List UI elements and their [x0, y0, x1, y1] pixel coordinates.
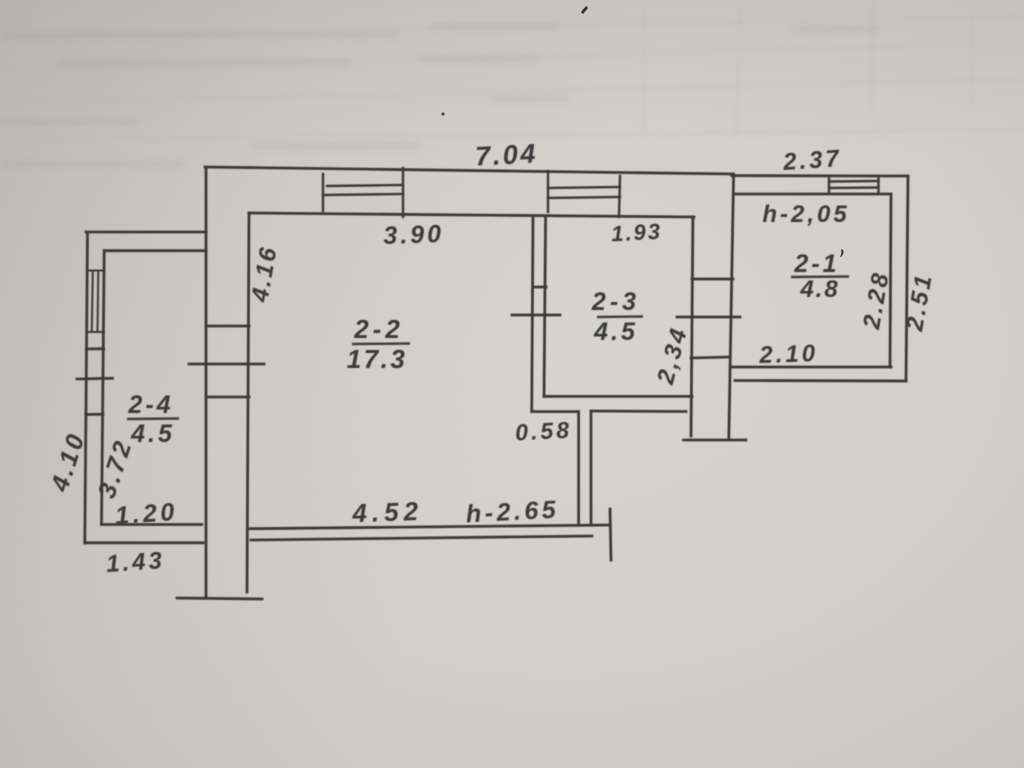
- svg-text:h-2.65: h-2.65: [465, 496, 560, 529]
- svg-text:1.93: 1.93: [611, 219, 663, 247]
- svg-text:2.10: 2.10: [758, 340, 819, 369]
- svg-text:h-2,05: h-2,05: [762, 201, 849, 228]
- svg-text:4.5: 4.5: [593, 318, 638, 346]
- svg-text:17.3: 17.3: [347, 344, 408, 374]
- svg-text:2-3: 2-3: [591, 288, 640, 316]
- svg-text:2-4: 2-4: [127, 391, 173, 419]
- svg-text:3.90: 3.90: [383, 220, 445, 250]
- svg-text:4.52: 4.52: [351, 496, 424, 528]
- svg-text:0.58: 0.58: [515, 417, 573, 446]
- svg-text:1.43: 1.43: [105, 547, 165, 578]
- svg-text:1.20: 1.20: [114, 498, 178, 530]
- svg-text:4.8: 4.8: [799, 276, 839, 303]
- svg-text:2-1: 2-1: [793, 250, 839, 278]
- svg-text:2.37: 2.37: [781, 145, 842, 176]
- svg-text:2-2: 2-2: [353, 314, 404, 344]
- svg-text:7.04: 7.04: [475, 138, 539, 171]
